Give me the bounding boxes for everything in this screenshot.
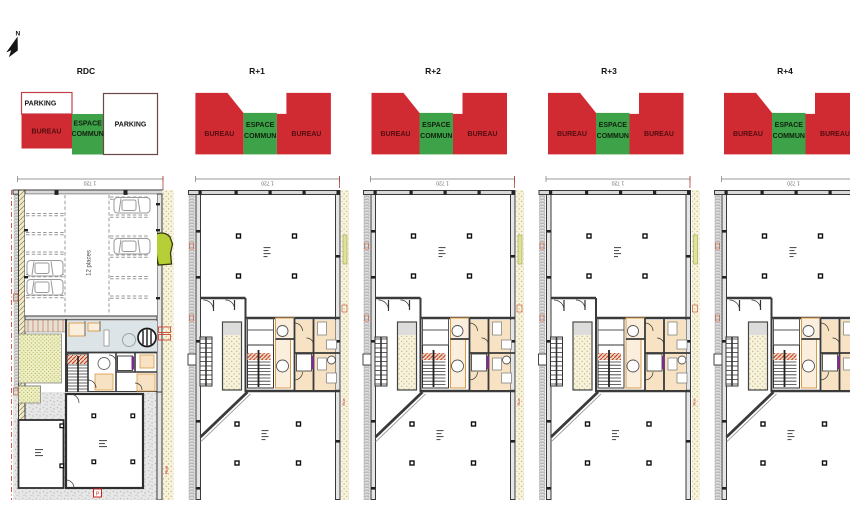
svg-text:ESPACE: ESPACE [422, 122, 451, 129]
svg-text:BUREAU: BUREAU [32, 129, 62, 136]
svg-text:COMMUN: COMMUN [420, 133, 452, 140]
svg-text:Rue: Rue [164, 465, 169, 474]
svg-text:R+3: R+3 [601, 66, 617, 76]
svg-text:R+2: R+2 [425, 66, 441, 76]
svg-text:BUREAU: BUREAU [733, 131, 763, 138]
svg-text:R+1: R+1 [249, 66, 265, 76]
svg-text:BUREAU: BUREAU [820, 131, 850, 138]
svg-text:COMMUN: COMMUN [244, 133, 276, 140]
svg-text:BUREAU: BUREAU [291, 131, 321, 138]
svg-text:ESPACE: ESPACE [775, 122, 804, 129]
svg-text:ESPACE: ESPACE [246, 122, 275, 129]
svg-text:BUREAU: BUREAU [557, 131, 587, 138]
svg-text:R+4: R+4 [777, 66, 793, 76]
svg-text:BUREAU: BUREAU [381, 131, 411, 138]
svg-text:COMMUN: COMMUN [597, 133, 629, 140]
svg-text:RDC: RDC [77, 66, 95, 76]
svg-text:BUREAU: BUREAU [644, 131, 674, 138]
svg-text:COMMUN: COMMUN [773, 133, 805, 140]
svg-text:ESPACE: ESPACE [74, 121, 103, 128]
svg-text:PARKING: PARKING [25, 101, 57, 108]
svg-text:PARKING: PARKING [115, 122, 147, 129]
svg-text:1 720: 1 720 [84, 180, 97, 186]
svg-text:12 places: 12 places [87, 250, 93, 276]
svg-text:ESPACE: ESPACE [599, 122, 628, 129]
svg-text:BUREAU: BUREAU [204, 131, 234, 138]
svg-text:N: N [16, 31, 21, 38]
svg-text:COMMUN: COMMUN [72, 131, 104, 138]
svg-text:BUREAU: BUREAU [468, 131, 498, 138]
